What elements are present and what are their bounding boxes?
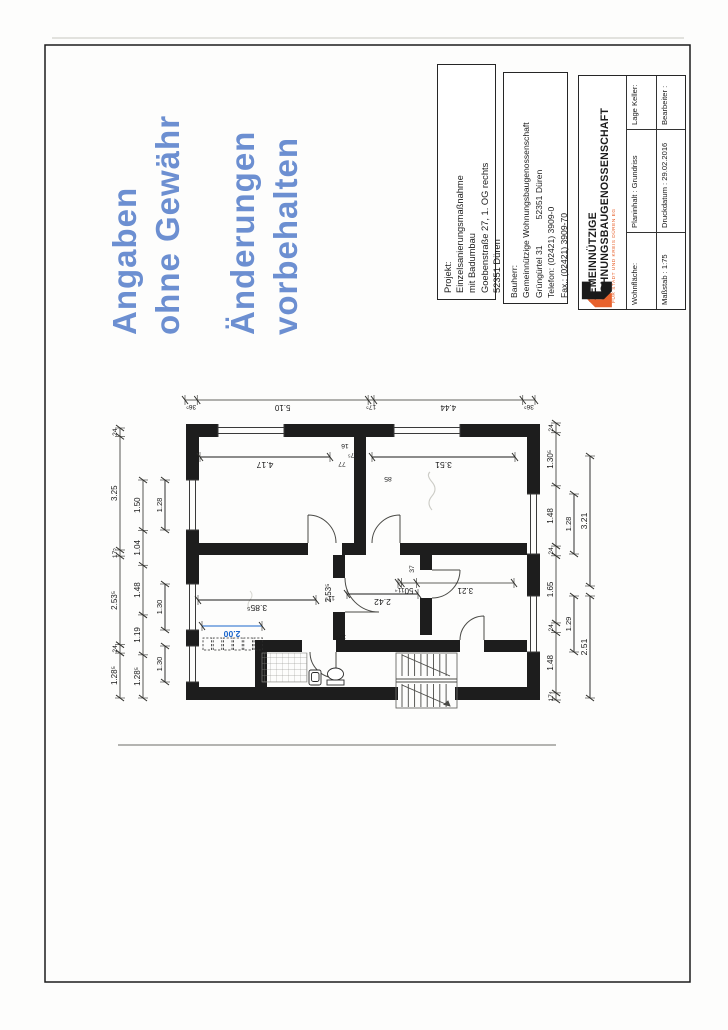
svg-text:1.30⁵: 1.30⁵ — [546, 450, 555, 469]
svg-text:77: 77 — [338, 460, 346, 467]
svg-text:3.25: 3.25 — [110, 485, 119, 501]
svg-text:1.48: 1.48 — [133, 582, 142, 598]
company-tagline: FÜR STADT UND KREIS DÜREN EG — [612, 108, 617, 303]
svg-text:3.21: 3.21 — [457, 586, 473, 595]
bauherr-line: Grüngürtel 31 52351 Düren — [533, 78, 545, 298]
svg-text:37: 37 — [409, 565, 416, 573]
projekt-line: mit Badumbau — [466, 71, 478, 293]
svg-text:17⁵: 17⁵ — [366, 403, 376, 410]
company-name: GEMEINNÜTZIGE — [588, 108, 600, 303]
stamp-line: Änderungen — [221, 35, 264, 335]
cell-lage-keller: Lage Keller: — [627, 76, 656, 130]
svg-text:4.17: 4.17 — [256, 460, 273, 470]
disclaimer-stamp: Angaben ohne Gewähr Änderungen vorbehalt… — [103, 35, 307, 335]
svg-text:1.04: 1.04 — [133, 539, 142, 555]
svg-text:3.21: 3.21 — [579, 512, 589, 529]
table-row: Wohnfläche: Planinhalt : Grundriss Lage … — [627, 76, 656, 309]
bathroom — [262, 653, 344, 685]
svg-text:1.30: 1.30 — [155, 600, 164, 615]
svg-text:11⁵: 11⁵ — [325, 594, 335, 601]
bauherr-address: Gemeinnützige Wohnungsbaugenossenschaft … — [520, 78, 570, 298]
svg-text:36⁵: 36⁵ — [524, 403, 534, 410]
cell-wohnflaeche: Wohnfläche: — [627, 233, 656, 309]
projekt-line: Einzelsanierungsmaßnahme — [454, 71, 466, 293]
bauherr-line: Gemeinnützige Wohnungsbaugenossenschaft — [520, 78, 532, 298]
titleblock-bauherr: Bauherr: Gemeinnützige Wohnungsbaugenoss… — [503, 72, 568, 304]
company-name-block: GEMEINNÜTZIGE WOHNUNGSBAUGENOSSENSCHAFT … — [588, 108, 617, 303]
stamp-line: vorbehalten — [264, 35, 307, 335]
scanned-page: 36⁵5.1017⁵4.4436⁵1.28⁵242.53⁵17⁵3.25241.… — [0, 0, 728, 1030]
svg-text:1.29: 1.29 — [564, 617, 573, 632]
svg-text:17⁵: 17⁵ — [112, 548, 119, 558]
titleblock-projekt: Projekt: Einzelsanierungsmaßnahme mit Ba… — [437, 64, 496, 300]
svg-text:3.51: 3.51 — [435, 460, 452, 470]
projekt-address: Einzelsanierungsmaßnahme mit Badumbau Go… — [454, 71, 503, 293]
svg-text:2.51: 2.51 — [579, 638, 589, 655]
bauherr-city: 52351 Düren — [533, 170, 545, 220]
company-banner: GEMEINNÜTZIGE WOHNUNGSBAUGENOSSENSCHAFT … — [579, 76, 627, 309]
stamp-line: ohne Gewähr — [146, 35, 189, 335]
bauherr-street: Grüngürtel 31 — [533, 245, 545, 298]
toilet-fixture — [327, 680, 344, 685]
drawing-sheet-landscape: 36⁵5.1017⁵4.4436⁵1.28⁵242.53⁵17⁵3.25241.… — [0, 0, 728, 1030]
small-dimensions: 2.53⁵7717⁵168511⁵3717⁵ — [324, 442, 416, 640]
stamp-line: Angaben — [103, 35, 146, 335]
svg-text:17⁵: 17⁵ — [348, 451, 359, 458]
cell-planinhalt: Planinhalt : Grundriss — [627, 130, 656, 233]
svg-text:2.53⁵: 2.53⁵ — [110, 591, 119, 610]
svg-text:16: 16 — [341, 442, 349, 449]
svg-text:17⁵: 17⁵ — [336, 633, 347, 640]
cell-druckdatum: Druckdatum : 29.02.2016 — [657, 130, 686, 233]
svg-text:1.28⁵: 1.28⁵ — [133, 667, 142, 686]
titleblock-company: GEMEINNÜTZIGE WOHNUNGSBAUGENOSSENSCHAFT … — [578, 75, 686, 310]
svg-text:1.19: 1.19 — [133, 627, 142, 643]
svg-text:1.65: 1.65 — [546, 581, 555, 597]
pencil-note — [428, 472, 435, 510]
svg-text:24: 24 — [548, 547, 555, 555]
svg-text:1.28⁵: 1.28⁵ — [110, 666, 119, 685]
svg-text:1.28: 1.28 — [155, 498, 164, 513]
bauherr-line: Fax.: (02421) 3909-70 — [558, 78, 570, 298]
company-name: WOHNUNGSBAUGENOSSENSCHAFT — [600, 108, 612, 303]
bathroom-tiles — [262, 653, 307, 682]
table-row: Maßstab : 1:75 Druckdatum : 29.02.2016 B… — [656, 76, 686, 309]
stairwell — [396, 653, 457, 708]
svg-text:3.85⁵: 3.85⁵ — [246, 603, 267, 613]
svg-text:1.28: 1.28 — [564, 517, 573, 532]
svg-text:1.48: 1.48 — [546, 654, 555, 670]
plan-info-table: Wohnfläche: Planinhalt : Grundriss Lage … — [627, 76, 685, 309]
svg-text:85: 85 — [384, 475, 392, 482]
company-logo-icon — [579, 279, 613, 309]
svg-text:2.42: 2.42 — [374, 597, 391, 607]
projekt-line: Goebenstraße 27, 1. OG rechts — [479, 71, 491, 293]
svg-text:5.10: 5.10 — [274, 403, 290, 412]
svg-text:1.30: 1.30 — [155, 657, 164, 672]
svg-text:24: 24 — [548, 424, 555, 432]
svg-text:36⁵: 36⁵ — [186, 403, 196, 410]
bauherr-line: Telefon: (02421) 3909-0 — [545, 78, 557, 298]
svg-text:24: 24 — [112, 428, 119, 436]
svg-text:1.50: 1.50 — [133, 497, 142, 513]
cell-massstab: Maßstab : 1:75 — [657, 233, 686, 309]
svg-text:11⁴: 11⁴ — [395, 586, 405, 593]
projekt-line: 52351 Düren — [491, 71, 503, 293]
svg-text:1.48: 1.48 — [546, 508, 555, 524]
cell-bearbeiter: Bearbeiter : — [657, 76, 686, 130]
walls — [186, 424, 540, 700]
projekt-label: Projekt: — [442, 237, 454, 293]
svg-text:4.44: 4.44 — [440, 403, 456, 412]
svg-text:2.00: 2.00 — [223, 629, 240, 639]
svg-text:24: 24 — [112, 645, 119, 653]
bauherr-label: Bauherr: — [508, 242, 520, 298]
svg-text:24: 24 — [548, 624, 555, 632]
